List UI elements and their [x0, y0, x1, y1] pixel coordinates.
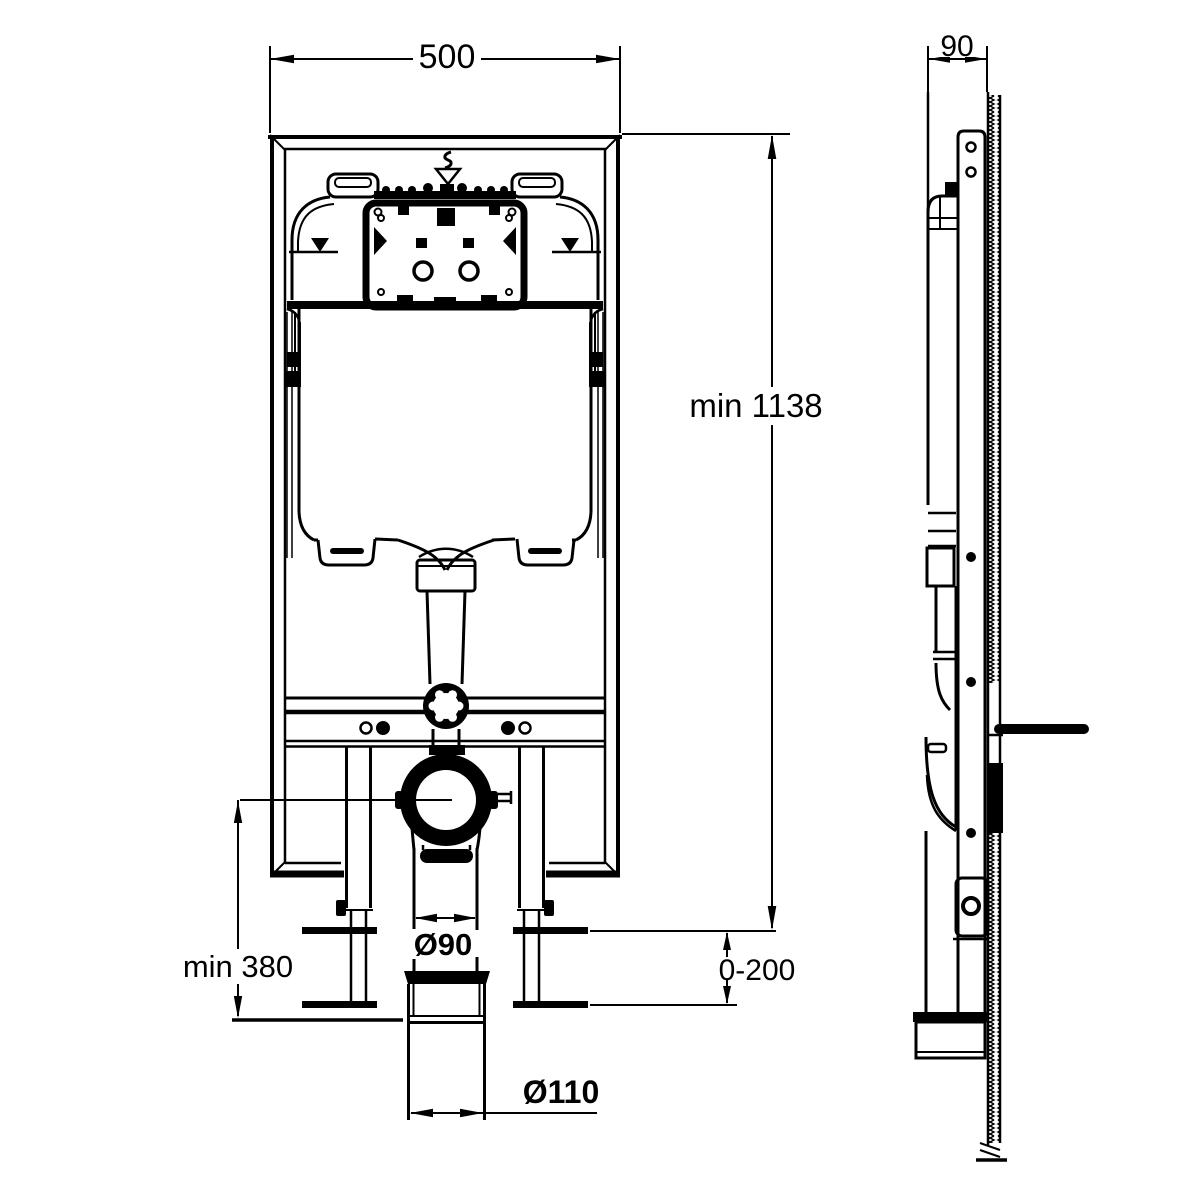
dimension-frame-height: min 1138 — [622, 134, 823, 930]
dimension-soil-pipe-diameter: Ø110 — [410, 1074, 599, 1117]
side-view: 90 — [913, 30, 1089, 1160]
dimension-foot-adjustment: 0-200 — [590, 931, 795, 1005]
water-level-icon — [289, 238, 601, 252]
wall-section — [976, 92, 1007, 1160]
technical-drawing-canvas: 500 — [0, 0, 1200, 1200]
cistern-side-profile — [926, 92, 959, 1013]
dim-label-flush-bend-dia: Ø90 — [414, 927, 473, 962]
dimension-frame-width: 500 — [270, 38, 620, 133]
dim-label-frame-depth: 90 — [940, 30, 973, 63]
front-view: 500 — [183, 38, 823, 1120]
dim-label-frame-width: 500 — [419, 38, 476, 76]
cistern-frame-drawing: 500 — [0, 0, 1200, 1200]
flush-pipe — [417, 560, 475, 755]
dimension-frame-depth: 90 — [928, 30, 987, 92]
wall-bracket-arm — [994, 724, 1089, 734]
dimension-flush-bend-diameter: Ø90 — [411, 914, 476, 962]
dim-label-outlet-height: min 380 — [183, 949, 293, 984]
cistern-tank — [286, 174, 604, 570]
soil-pipe — [404, 971, 490, 1120]
pipe-grommet — [423, 683, 469, 729]
frame-rail-profile — [945, 131, 988, 1013]
access-panel-cutout — [366, 203, 524, 307]
side-foot — [913, 1012, 988, 1058]
dim-label-frame-height: min 1138 — [689, 387, 822, 424]
dim-label-foot-adjustment: 0-200 — [719, 954, 796, 987]
dim-label-soil-pipe-dia: Ø110 — [523, 1074, 600, 1110]
water-supply-icon — [436, 152, 460, 193]
